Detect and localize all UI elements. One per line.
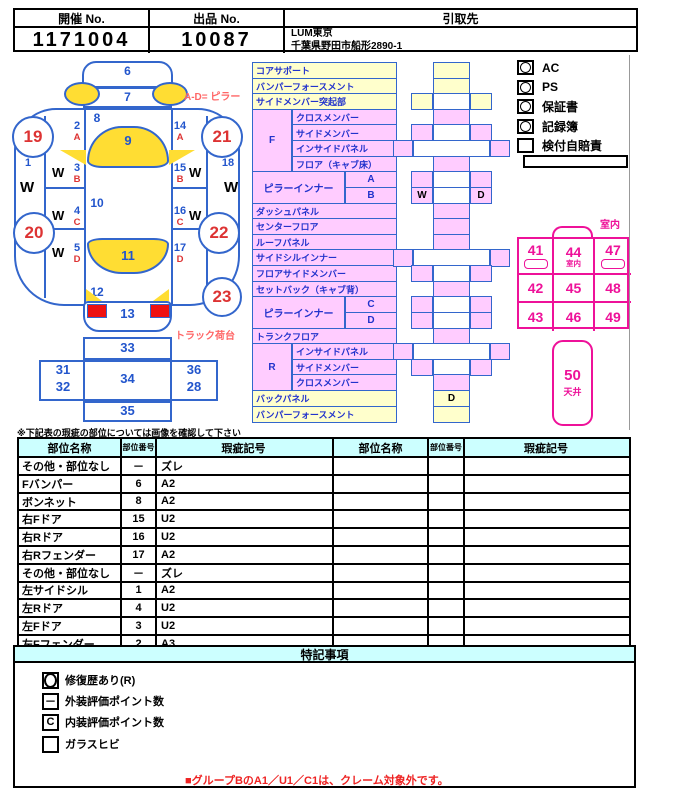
event-no-value: 1171004 [15,28,150,53]
damage-cell: その他・部位なし [19,458,122,474]
zone-rear-bumper-number: 13 [83,306,172,321]
damage-cell: 8 [122,494,157,510]
claim-warning-text: ■グループBのA1／U1／C1は、クレーム対象外です。 [185,772,449,788]
zone-cowl-number: 8 [90,111,104,125]
equipment-row: 保証書 [517,97,578,116]
parts-row-label: サイドメンバー [292,124,397,141]
zone-outer-right-number: 18 [219,157,237,169]
zone-left-c: 4C [70,206,84,228]
equipment-checkbox [517,99,534,114]
damage-cell [429,583,465,599]
skeleton-cell [433,374,470,391]
zone-left-c-letter: C [70,218,84,228]
damage-cell: ズレ [157,565,330,581]
damage-cell: 左Rドア [19,600,122,616]
damage-cell [334,511,429,527]
damage-row: ボンネット8A2 [19,494,332,512]
skeleton-cell [470,93,492,110]
legend-item-exterior: － 外装評価ポイント数 [42,692,164,710]
damage-row: その他・部位なし－ズレ [19,565,332,583]
damage-row [334,458,629,476]
interior-grid: 4144室内47424548434649 [517,237,629,329]
bed-right-top-number: 36 [174,362,214,377]
skeleton-cell [470,265,492,282]
seat-icon [601,259,625,269]
skeleton-cell: W [411,187,433,204]
skeleton-cell [411,359,433,376]
blank-field-box [523,155,628,168]
damage-cell: Fバンパー [19,476,122,492]
zone-right-c-number: 16 [173,206,187,217]
equipment-label: 検付自賠責 [542,137,602,154]
event-no-label: 開催 No. [15,10,150,26]
damage-cell [465,583,627,599]
interior-cell: 45 [554,275,595,303]
ceiling-label: 天井 [563,385,581,398]
damage-cell [334,583,429,599]
damage-cell: 1 [122,583,157,599]
circle-20-number: 20 [25,223,44,243]
equipment-checkbox [517,80,534,95]
header-value-row: 1171004 10087 LUM東京 千葉県野田市船形2890-1 [15,28,636,53]
zone-left-c-number: 4 [70,206,84,217]
damage-cell: A2 [157,547,330,563]
parts-row-label: トランクフロア [252,328,397,345]
interior-number: 43 [528,310,544,324]
interior-cell: 44室内 [554,239,595,275]
skeleton-cell [411,265,433,282]
equipment-checkbox [517,138,534,153]
parts-row-label: フロアサイドメンバー [252,265,397,282]
damage-cell: 6 [122,476,157,492]
skeleton-cell [433,312,470,329]
parts-row-label: バンパーフォースメント [252,406,397,423]
damage-col-header: 瑕疵記号 [465,439,627,456]
parts-group-label: ピラーインナー [252,296,345,329]
bed-left-bottom-number: 32 [45,379,81,394]
zone-right-a-letter: A [173,133,187,143]
circle-zone-22: 22 [198,212,240,254]
parts-row-label: C [345,296,397,313]
interior-points-box: C [42,714,59,731]
damage-cell: － [122,458,157,474]
parts-row-label: サイドメンバー [292,359,397,376]
interior-cell: 49 [595,303,631,331]
damage-cell [429,476,465,492]
zone-left-d: 5D [70,243,84,265]
damage-cell: 右Rフェンダー [19,547,122,563]
section-divider-line [629,55,630,430]
equipment-label: 保証書 [542,98,578,115]
damage-row: 左Rドア4U2 [19,600,332,618]
skeleton-cell [413,140,490,157]
interior-number: 47 [605,243,621,257]
interior-cell: 46 [554,303,595,331]
damage-row [334,494,629,512]
skeleton-cell [433,328,470,345]
truck-bed-note: トラック荷台 [175,327,235,342]
legend-label: 外装評価ポイント数 [65,693,164,709]
skeleton-cell [433,93,470,110]
parts-row-label: サイドシルインナー [252,249,397,266]
equipment-row: AC [517,58,559,77]
ceiling-box: 50 天井 [552,340,593,426]
auction-sheet: 開催 No. 出品 No. 引取先 1171004 10087 LUM東京 千葉… [0,0,696,793]
parts-row-label: クロスメンバー [292,374,397,391]
seat-icon [524,259,548,269]
skeleton-cell [470,124,492,141]
damage-cell [334,618,429,634]
pickup-line1: LUM東京 [291,28,333,41]
damage-cell: A2 [157,583,330,599]
bed-front-number: 33 [83,340,172,355]
header-label-row: 開催 No. 出品 No. 引取先 [15,10,636,28]
zone-left-b: 3B [70,163,84,185]
damage-cell: ズレ [157,458,330,474]
damage-cell [334,458,429,474]
skeleton-cell [433,359,470,376]
equipment-label: 記録簿 [542,118,578,135]
parts-group-label: R [252,343,292,391]
damage-cell: A2 [157,494,330,510]
skeleton-cell [411,124,433,141]
damage-cell [429,511,465,527]
zone-right-d-letter: D [173,255,187,265]
zone-right-a: 14A [173,121,187,143]
damage-cell [465,458,627,474]
skeleton-cell [490,140,510,157]
damage-col-header: 瑕疵記号 [157,439,330,456]
damage-cell [465,565,627,581]
interior-number: 49 [605,310,621,324]
damage-cell [429,529,465,545]
skeleton-cell [490,343,510,360]
zone-outer-left-number: 1 [21,157,35,169]
damage-cell [465,618,627,634]
skeleton-cell [433,406,470,423]
zone-left-a-number: 2 [70,121,84,132]
circle-mark-icon [520,62,531,73]
left-divider-1 [45,187,85,189]
bed-left-top-number: 31 [45,362,81,377]
equipment-row: 記録簿 [517,117,578,136]
damage-cell: 左Fドア [19,618,122,634]
pickup-value: LUM東京 千葉県野田市船形2890-1 [285,28,636,53]
damage-table-right: 部位名称部位番号瑕疵記号 [334,439,629,652]
pickup-line2: 千葉県野田市船形2890-1 [291,41,402,54]
damage-col-header: 部位名称 [334,439,429,456]
damage-cell [334,565,429,581]
right-divider-1 [172,187,207,189]
bed-right-bottom-number: 28 [174,379,214,394]
equipment-label: AC [542,61,559,75]
zone-right-c: 16C [173,206,187,228]
damage-row [334,511,629,529]
parts-row-label: コアサポート [252,62,397,79]
damage-cell: － [122,565,157,581]
equipment-checkbox [517,119,534,134]
damage-row: 左Fドア3U2 [19,618,332,636]
circle-mark-icon [520,101,531,112]
damage-cell: U2 [157,600,330,616]
skeleton-cell [393,140,413,157]
parts-row-label: サイドメンバー突起部 [252,93,397,110]
damage-col-header: 部位番号 [122,439,157,456]
zone-cabin-number: 10 [90,196,104,210]
skeleton-cell [470,359,492,376]
damage-row: 左サイドシル1A2 [19,583,332,601]
right-b-w-mark: W [189,166,201,179]
interior-corner-label: 室内 [600,216,620,231]
skeleton-cell [433,62,470,79]
circle-19-number: 19 [24,127,43,147]
skeleton-cell [470,296,492,313]
pillar-note: A-D= ピラー [184,88,240,103]
damage-cell: その他・部位なし [19,565,122,581]
skeleton-cell: D [433,390,470,407]
skeleton-cell [470,312,492,329]
damage-cell [465,511,627,527]
circle-mark-icon [520,82,531,93]
zone-right-c-letter: C [173,218,187,228]
outer-left-w-mark: W [20,180,34,195]
parts-row-label: セットバック（キャブ背） [252,281,397,298]
interior-number: 45 [566,281,582,295]
damage-row [334,565,629,583]
circle-23-number: 23 [213,287,232,307]
damage-cell: 左サイドシル [19,583,122,599]
damage-cell [334,476,429,492]
damage-header-row: 部位名称部位番号瑕疵記号 [334,439,629,458]
damage-col-header: 部位番号 [429,439,465,456]
interior-cell: 47 [595,239,631,275]
zone-right-a-number: 14 [173,121,187,132]
c-mark: C [47,716,55,728]
parts-label-list: コアサポートバンパーフォースメントサイドメンバー突起部Fクロスメンバーサイドメン… [252,62,397,424]
interior-cell: 41 [519,239,554,275]
parts-row-label: B [345,187,397,204]
interior-number: 41 [528,243,544,257]
damage-cell [429,565,465,581]
skeleton-cell [470,171,492,188]
damage-cell: 16 [122,529,157,545]
damage-header-row: 部位名称部位番号瑕疵記号 [19,439,332,458]
zone-left-b-number: 3 [70,163,84,174]
skeleton-cell [433,109,470,126]
skeleton-cell [393,343,413,360]
zone-bonnet-number: 7 [83,90,172,104]
damage-cell [429,458,465,474]
damage-cell: U2 [157,618,330,634]
glass-crack-box [42,736,59,753]
damage-row: その他・部位なし－ズレ [19,458,332,476]
damage-row [334,476,629,494]
damage-cell [334,494,429,510]
damage-cell [334,529,429,545]
damage-cell [334,600,429,616]
legend-label: ガラスヒビ [65,736,120,752]
skeleton-cell [433,124,470,141]
interior-number: 48 [605,281,621,295]
skeleton-cell [433,78,470,95]
interior-cell: 43 [519,303,554,331]
damage-row [334,600,629,618]
damage-cell [429,494,465,510]
special-notes-title: 特記事項 [15,647,634,663]
legend-label: 内装評価ポイント数 [65,714,164,730]
interior-number: 42 [528,281,544,295]
damage-cell: U2 [157,529,330,545]
circle-22-number: 22 [210,223,229,243]
parts-row-label: クロスメンバー [292,109,397,126]
parts-row-label: センターフロア [252,218,397,235]
zone-rear-window-number: 11 [87,248,169,263]
parts-row-label: インサイドパネル [292,343,397,360]
skeleton-cell [411,296,433,313]
damage-cell [334,547,429,563]
skeleton-cell [433,265,470,282]
bed-center-number: 34 [83,371,172,386]
damage-cell: 15 [122,511,157,527]
damage-row [334,618,629,636]
damage-row: Fバンパー6A2 [19,476,332,494]
damage-cell: ボンネット [19,494,122,510]
damage-cell [429,547,465,563]
left-c-w-mark: W [52,209,64,222]
damage-cell: 右Fドア [19,511,122,527]
legend-item-repair: 修復歴あり(R) [42,671,135,689]
bed-rear-number: 35 [83,403,172,418]
damage-cell: 3 [122,618,157,634]
skeleton-cell [413,249,490,266]
damage-cell: U2 [157,511,330,527]
circle-mark-icon [520,121,531,132]
legend-item-interior: C 内装評価ポイント数 [42,713,164,731]
exterior-points-box: － [42,693,59,710]
lot-no-label: 出品 No. [150,10,285,26]
damage-cell [465,476,627,492]
skeleton-cell [411,93,433,110]
damage-row [334,583,629,601]
equipment-checkbox-list: ACPS保証書記録簿検付自賠責 [517,58,637,158]
zone-right-d: 17D [173,243,187,265]
equipment-row: 検付自賠責 [517,136,602,155]
interior-cell: 42 [519,275,554,303]
header-table: 開催 No. 出品 No. 引取先 1171004 10087 LUM東京 千葉… [13,8,638,52]
damage-col-header: 部位名称 [19,439,122,456]
right-c-w-mark: W [189,209,201,222]
pickup-label: 引取先 [285,10,636,26]
left-d-w-mark: W [52,246,64,259]
circle-zone-20: 20 [13,212,55,254]
parts-row-label: D [345,312,397,329]
zone-left-a: 2A [70,121,84,143]
skeleton-cell: D [470,187,492,204]
skeleton-cell [433,171,470,188]
special-notes-box: 特記事項 修復歴あり(R) － 外装評価ポイント数 C 内装評価ポイント数 ガラ… [13,645,636,788]
damage-cell: 右Rドア [19,529,122,545]
skeleton-cell [413,343,490,360]
legend-item-glass: ガラスヒビ [42,735,120,753]
damage-row: 右Rドア16U2 [19,529,332,547]
skeleton-cell [411,312,433,329]
zone-left-d-letter: D [70,255,84,265]
legend-label: 修復歴あり(R) [65,672,135,688]
circle-zone-23: 23 [202,277,242,317]
equipment-label: PS [542,80,558,94]
body-line-left-inner [84,108,86,306]
damage-table: 部位名称部位番号瑕疵記号その他・部位なし－ズレFバンパー6A2ボンネット8A2右… [17,437,631,654]
damage-cell [465,547,627,563]
parts-row-label: バンパーフォースメント [252,78,397,95]
damage-cell: A2 [157,476,330,492]
interior-sub-label: 室内 [566,260,581,268]
parts-row-label: ルーフパネル [252,234,397,251]
skeleton-cell [433,203,470,220]
damage-cell [465,529,627,545]
frame-skeleton-diagram: WDD [393,62,510,424]
parts-row-label: A [345,171,397,188]
damage-table-left: 部位名称部位番号瑕疵記号その他・部位なし－ズレFバンパー6A2ボンネット8A2右… [19,439,334,652]
damage-row [334,529,629,547]
zone-left-a-letter: A [70,133,84,143]
skeleton-cell [433,218,470,235]
parts-row-label: フロア（キャブ床） [292,156,397,173]
zone-left-d-number: 5 [70,243,84,254]
parts-row-label: バックパネル [252,390,397,407]
parts-row-label: ダッシュパネル [252,203,397,220]
damage-cell: 4 [122,600,157,616]
equipment-checkbox [517,60,534,75]
zone-right-b-number: 15 [173,163,187,174]
skeleton-cell [433,296,470,313]
ceiling-number: 50 [564,368,581,383]
circle-mark-icon [44,673,57,688]
left-b-w-mark: W [52,166,64,179]
zone-right-b-letter: B [173,175,187,185]
damage-cell [465,494,627,510]
circle-zone-21: 21 [201,116,243,158]
zone-left-b-letter: B [70,175,84,185]
damage-row [334,547,629,565]
zone-right-b: 15B [173,163,187,185]
circle-21-number: 21 [213,127,232,147]
skeleton-cell [411,171,433,188]
zone-front-bumper-number: 6 [82,64,173,78]
interior-number: 44 [566,245,582,259]
skeleton-cell [433,234,470,251]
parts-group-label: ピラーインナー [252,171,345,204]
damage-row: 右Fドア15U2 [19,511,332,529]
damage-cell [429,618,465,634]
lot-no-value: 10087 [150,28,285,53]
damage-cell: 17 [122,547,157,563]
skeleton-cell [393,249,413,266]
damage-cell [465,600,627,616]
skeleton-cell [433,281,470,298]
skeleton-cell [490,249,510,266]
interior-number: 46 [566,310,582,324]
interior-cell: 48 [595,275,631,303]
outer-right-w-mark: W [224,180,238,195]
circle-zone-19: 19 [12,116,54,158]
skeleton-cell [433,187,470,204]
skeleton-cell [433,156,470,173]
zone-right-d-number: 17 [173,243,187,254]
minus-mark: － [45,693,56,709]
zone-windshield-number: 9 [87,133,169,148]
parts-group-label: F [252,109,292,173]
